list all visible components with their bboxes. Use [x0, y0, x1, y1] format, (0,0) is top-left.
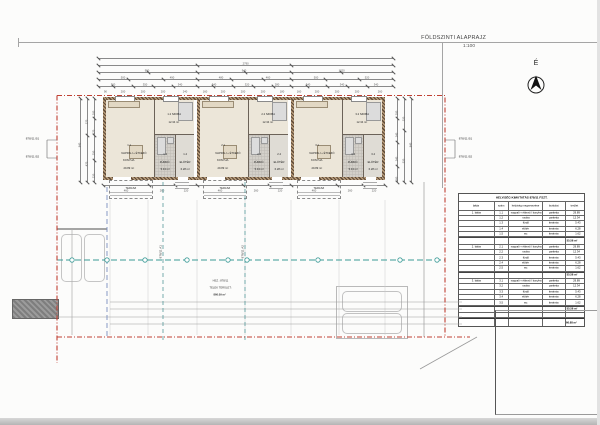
table-cell [494, 238, 509, 243]
dimension-text: 520 [403, 159, 406, 164]
table-cell: szoba [508, 216, 542, 220]
dimension-value: 840 [399, 131, 417, 159]
table-header-row: lakásszámhelyiség megnevezéseburkolatter… [459, 202, 584, 211]
table-cell-text: 2.3 [500, 256, 504, 259]
table-cell: 2.4 [494, 261, 509, 265]
table-cell: 5.43 [565, 221, 584, 225]
room-label-line: 2.2 SZOBA [261, 114, 275, 116]
table-cell-text: parketta [549, 217, 559, 220]
terrace-step [110, 192, 152, 193]
room-label-line: 1.1 [127, 145, 131, 147]
unit-cell: 2. lakás [459, 245, 494, 249]
washbasin [355, 137, 362, 144]
room-label-line: 29.89 m² [124, 168, 135, 170]
dimension-text: 250 [93, 150, 96, 155]
dimension-text: 160 [297, 90, 302, 93]
step-line [363, 182, 377, 183]
table-cell: kerámia [542, 261, 564, 265]
kitchen-counter [296, 101, 328, 108]
unit-module: 1.1NAPPALI + ÉTKEZŐKONYHA29.89 m²1.2 SZO… [103, 97, 197, 180]
table-cell: 6.28 [565, 227, 584, 231]
room-label-line: 2.1 [221, 145, 225, 147]
table-cell: 6.28 [565, 295, 584, 299]
table-cell-text: 1.4 [500, 228, 504, 231]
room-label-line: FÜRDŐ [348, 162, 358, 164]
table-cell: szoba [508, 250, 542, 254]
table-cell-text: 1.62 [576, 301, 581, 304]
hall-label: 3.4ELŐTÉR6.28 m² [360, 149, 386, 172]
table-cell-text: 1.62 [576, 267, 581, 270]
table-cell [459, 238, 494, 243]
table-cell-text: terület [571, 204, 579, 207]
terrace: TERASZ [297, 180, 341, 199]
room-label-line: 6.28 m² [368, 169, 377, 171]
car-outline [61, 234, 82, 282]
window [163, 96, 179, 102]
table-cell-text: 1. lakás [472, 211, 481, 214]
table-cell-text: 3.1 [500, 280, 504, 283]
dimension-text: 200 [335, 90, 340, 93]
terrace-step [110, 195, 152, 196]
unit-cell [459, 284, 494, 288]
unit-cell [459, 266, 494, 270]
room-label-line: KONYHA [217, 160, 228, 162]
table-cell: 3.5 [494, 300, 509, 304]
table-cell: wc [508, 266, 542, 270]
table-cell-text: burkolat [549, 204, 559, 207]
table-cell: 3.2 [494, 284, 509, 288]
terrace: TERASZ [203, 180, 247, 199]
unit-cell [459, 232, 494, 236]
bedroom-label: 1.2 SZOBA12.34 m² [156, 109, 192, 124]
dimension-text: 240 [183, 90, 188, 93]
step-line [269, 185, 283, 186]
table-cell-text: szoba [522, 217, 529, 220]
unit-cell [459, 227, 494, 231]
table-cell-text: 2.1 [500, 245, 504, 248]
step-line [363, 188, 377, 189]
table-cell: 2.1 [494, 245, 509, 249]
table-cell: 3.1 [494, 279, 509, 283]
living-room-label: 1.1NAPPALI + ÉTKEZŐKONYHA29.89 m² [106, 140, 152, 170]
dimension-text: 260 [348, 189, 353, 192]
table-cell-text: 2. lakás [472, 245, 481, 248]
terrace-label: TERASZ [204, 183, 246, 191]
table-cell-text: kerámia [549, 296, 559, 299]
dimension-text: 200 [261, 90, 266, 93]
table-cell-text: előtér [522, 262, 529, 265]
dimension-value: 320 [392, 105, 410, 133]
room-label-line: 3.2 SZOBA [355, 114, 369, 116]
table-cell-text: 1.1 [500, 211, 504, 214]
kitchen-counter [108, 101, 140, 108]
car-outline [342, 313, 402, 334]
floor-plan-drawing: FÖLDSZINTI ALAPRAJZ 1:100 É 878/11 B1 87… [0, 0, 600, 425]
unit-cell [459, 261, 494, 265]
sum-cell: 55.56 m² [565, 238, 584, 243]
table-cell-text: 6.28 [576, 262, 581, 265]
room-label-line: 2.3 [257, 154, 261, 156]
table-title-row: HELYISÉG KIMUTATÁS 878/11 FSZT. [459, 194, 584, 202]
dimension-text: 220 [184, 189, 189, 192]
entry-steps [175, 180, 189, 189]
dimension-text: 260 [378, 90, 383, 93]
unit-cell [459, 295, 494, 299]
room-label-line: ELŐTÉR [368, 162, 379, 164]
table-cell-text: wc [524, 267, 527, 270]
room-label-line: 5.43 m² [254, 169, 263, 171]
dimension-text: 90 [104, 90, 107, 93]
table-cell: parketta [542, 279, 564, 283]
room-label-line: 5.43 m² [160, 169, 169, 171]
room-label-line: FÜRDŐ [160, 162, 170, 164]
table-cell-text: 1.2 [500, 217, 504, 220]
table-cell: 1.62 [565, 266, 584, 270]
table-cell: 29.89 [565, 279, 584, 283]
room-label-line: 12.34 m² [263, 122, 274, 124]
table-cell-text: 29.89 [573, 211, 580, 214]
room-label-line: ELŐTÉR [274, 162, 285, 164]
table-header-cell: terület [565, 202, 584, 210]
table-cell: parketta [542, 216, 564, 220]
car-outline [84, 234, 105, 282]
table-cell-text: lakás [473, 204, 479, 207]
terrace-step [204, 192, 246, 193]
table-cell-text: 3.3 [500, 290, 504, 293]
sum-cell: 55.56 m² [565, 273, 584, 278]
table-cell: 29.89 [565, 245, 584, 249]
table-cell: fürdő [508, 221, 542, 225]
table-cell: 1.2 [494, 216, 509, 220]
table-cell [494, 273, 509, 278]
table-cell: 2.3 [494, 255, 509, 259]
table-cell-text: 3. lakás [472, 280, 481, 283]
table-cell-text: fürdő [523, 290, 529, 293]
table-cell-text: 5.43 [576, 256, 581, 259]
room-label-line: 29.89 m² [218, 168, 229, 170]
table-cell-text: 3.5 [500, 301, 504, 304]
table-cell-text: előtér [522, 296, 529, 299]
dimension-text: 220 [372, 189, 377, 192]
table-cell-text: 12.34 [573, 251, 580, 254]
table-cell-text: parketta [549, 211, 559, 214]
dimension-tick [96, 56, 100, 60]
room-label-line: NAPPALI + ÉTKEZŐ [309, 153, 334, 155]
table-cell-text: 2.4 [500, 262, 504, 265]
step-line [269, 182, 283, 183]
title-block-box [495, 310, 600, 415]
table-cell: 5.43 [565, 290, 584, 294]
car-outline [342, 291, 402, 312]
table-cell: kerámia [542, 290, 564, 294]
table-cell-text: kerámia [549, 267, 559, 270]
room-schedule-table: HELYISÉG KIMUTATÁS 878/11 FSZT.lakásszám… [458, 193, 585, 327]
table-cell: kerámia [542, 300, 564, 304]
table-cell-text: helyiség megnevezése [512, 204, 539, 207]
table-header-cell: lakás [459, 202, 494, 210]
entry-steps [363, 180, 377, 189]
table-cell: 5.43 [565, 255, 584, 259]
dimension-tick [409, 180, 413, 184]
table-cell-text: kerámia [549, 228, 559, 231]
step-line [175, 182, 189, 183]
dimension-text: 180 [280, 90, 285, 93]
room-label-line: 12.34 m² [169, 122, 180, 124]
table-cell-text: 55.56 m² [567, 274, 578, 277]
unit-cell: 3. lakás [459, 279, 494, 283]
table-cell-text: fürdő [523, 222, 529, 225]
hall-label: 1.4ELŐTÉR6.28 m² [172, 149, 198, 172]
table-cell: 1.1 [494, 211, 509, 215]
room-label-line: 2.4 [277, 154, 281, 156]
room-label-line: 1.2 SZOBA [167, 114, 181, 116]
table-cell: parketta [542, 250, 564, 254]
table-cell-text: 3.4 [500, 296, 504, 299]
terrace-step [298, 192, 340, 193]
dimension-text: 220 [278, 189, 283, 192]
dimension-text: 260 [254, 189, 259, 192]
room-label-line: 3.4 [371, 154, 375, 156]
table-cell [508, 238, 542, 243]
table-cell: kerámia [542, 232, 564, 236]
terrace-label: TERASZ [110, 183, 152, 191]
table-cell [508, 273, 542, 278]
room-label-line: TERASZ [314, 188, 325, 190]
room-label-line: 12.34 m² [357, 122, 368, 124]
table-cell-text: 1.62 [576, 233, 581, 236]
table-cell-text: 2.2 [500, 251, 504, 254]
table-cell [459, 313, 494, 318]
unit-cell [459, 300, 494, 304]
table-cell-text: kerámia [549, 256, 559, 259]
table-cell-text: 3.2 [500, 285, 504, 288]
room-label-line: 1.3 [163, 154, 167, 156]
table-cell: 6.28 [565, 261, 584, 265]
table-cell-text: nappali + étkező / konyha [510, 211, 541, 214]
neighbour-building [12, 299, 59, 319]
room-label-line: ELŐTÉR [180, 162, 191, 164]
dimension-value: 260 [366, 80, 394, 98]
unit-cell [459, 250, 494, 254]
room-label-line: 1.4 [183, 154, 187, 156]
table-cell-text: szám [498, 204, 504, 207]
table-cell: 29.89 [565, 211, 584, 215]
table-cell-text: fürdő [523, 256, 529, 259]
table-cell [459, 273, 494, 278]
entry-steps [269, 180, 283, 189]
room-label-line: 5.43 m² [348, 169, 357, 171]
table-cell: wc [508, 300, 542, 304]
table-cell-text: wc [524, 301, 527, 304]
table-cell: kerámia [542, 227, 564, 231]
table-cell-text: 6.28 [576, 228, 581, 231]
living-room-label: 2.1NAPPALI + ÉTKEZŐKONYHA29.89 m² [200, 140, 246, 170]
table-cell-text: kerámia [549, 262, 559, 265]
table-cell: előtér [508, 261, 542, 265]
room-label-line: TERASZ [126, 188, 137, 190]
table-cell: kerámia [542, 255, 564, 259]
table-cell: kerámia [542, 221, 564, 225]
dimension-tick [96, 63, 100, 67]
table-cell-text: kerámia [549, 301, 559, 304]
unit-cell: 1. lakás [459, 211, 494, 215]
dimension-text: 160 [396, 177, 399, 182]
table-cell-text: 6.28 [576, 296, 581, 299]
table-cell-text: 5.43 [576, 290, 581, 293]
dimension-text: 200 [93, 111, 96, 116]
table-cell: fürdő [508, 255, 542, 259]
terrace-step [298, 195, 340, 196]
table-cell: 1.5 [494, 232, 509, 236]
dimension-value: 220 [82, 162, 100, 190]
table-cell-text: 55.56 m² [567, 240, 578, 243]
dimension-text: 200 [161, 90, 166, 93]
dimension-text: 160 [203, 90, 208, 93]
table-cell-text: 1.3 [500, 222, 504, 225]
table-cell: nappali + étkező / konyha [508, 279, 542, 283]
table-header-cell: burkolat [542, 202, 564, 210]
step-line [175, 188, 189, 189]
dimension-text: 200 [141, 90, 146, 93]
table-cell [459, 319, 494, 325]
dimension-text: 200 [221, 90, 226, 93]
table-cell-text: kerámia [549, 290, 559, 293]
table-cell-text: 29.89 [573, 245, 580, 248]
table-header-cell: helyiség megnevezése [508, 202, 542, 210]
table-cell: 1.62 [565, 300, 584, 304]
dimension-text: 320 [403, 117, 406, 122]
table-title-text: HELYISÉG KIMUTATÁS 878/11 FSZT. [496, 196, 548, 199]
dimension-text: 200 [121, 90, 126, 93]
table-cell-text: kerámia [549, 222, 559, 225]
unit-cell [459, 290, 494, 294]
table-cell: kerámia [542, 295, 564, 299]
room-label-line: FÜRDŐ [254, 162, 264, 164]
table-cell: parketta [542, 284, 564, 288]
bedroom-label: 3.2 SZOBA12.34 m² [344, 109, 380, 124]
table-cell-text: előtér [522, 228, 529, 231]
washbasin [261, 137, 268, 144]
table-title-cell: HELYISÉG KIMUTATÁS 878/11 FSZT. [459, 194, 584, 201]
table-cell: előtér [508, 295, 542, 299]
table-cell-text: 12.34 [573, 217, 580, 220]
dimension-tick [101, 183, 105, 187]
dimension-text: 240 [396, 133, 399, 138]
table-cell-text: parketta [549, 245, 559, 248]
step-line [175, 185, 189, 186]
table-cell: 2.2 [494, 250, 509, 254]
dimension-text: 840 [410, 143, 413, 148]
page-bottom-shadow [0, 418, 600, 425]
table-cell: előtér [508, 227, 542, 231]
table-cell: nappali + étkező / konyha [508, 211, 542, 215]
dimension-text: 260 [160, 189, 165, 192]
table-cell [542, 273, 564, 278]
table-cell-text: wc [524, 233, 527, 236]
dimension-text: 170 [93, 129, 96, 134]
table-cell-text: nappali + étkező / konyha [510, 245, 541, 248]
dimension-text: 200 [315, 90, 320, 93]
window [257, 96, 273, 102]
table-sum-row: 55.56 m² [459, 272, 584, 279]
table-cell-text: 5.43 [576, 222, 581, 225]
dimension-text: 840 [79, 143, 82, 148]
table-cell: 12.34 [565, 250, 584, 254]
table-cell: fürdő [508, 290, 542, 294]
room-label-line: 3.1 [315, 145, 319, 147]
window [351, 96, 367, 102]
table-cell-text: 2.5 [500, 267, 504, 270]
table-cell: nappali + étkező / konyha [508, 245, 542, 249]
unit-cell [459, 216, 494, 220]
room-label-line: 6.28 m² [274, 169, 283, 171]
table-cell: kerámia [542, 266, 564, 270]
unit-module: 3.1NAPPALI + ÉTKEZŐKONYHA29.89 m²3.2 SZO… [291, 97, 385, 180]
unit-cell [459, 255, 494, 259]
table-cell: 12.34 [565, 284, 584, 288]
dimension-text: 220 [93, 174, 96, 179]
dimension-text: 200 [355, 90, 360, 93]
table-cell: parketta [542, 245, 564, 249]
table-cell-text: nappali + étkező / konyha [510, 280, 541, 283]
table-cell-text: szoba [522, 285, 529, 288]
terrace-label: TERASZ [298, 183, 340, 191]
unit-cell [459, 221, 494, 225]
table-cell-text: 1.5 [500, 233, 504, 236]
room-label-line: 6.28 m² [180, 169, 189, 171]
table-cell-text: parketta [549, 280, 559, 283]
table-cell: parketta [542, 211, 564, 215]
washbasin [167, 137, 174, 144]
kitchen-counter [202, 101, 234, 108]
table-cell-text: parketta [549, 251, 559, 254]
dimension-text: 200 [241, 90, 246, 93]
terrace: TERASZ [109, 180, 153, 199]
table-header-cell: szám [494, 202, 509, 210]
table-cell-text: 29.89 [573, 280, 580, 283]
table-sum-row: 55.56 m² [459, 237, 584, 244]
table-cell: wc [508, 232, 542, 236]
table-cell: 1.3 [494, 221, 509, 225]
bedroom-label: 2.2 SZOBA12.34 m² [250, 109, 286, 124]
living-room-label: 3.1NAPPALI + ÉTKEZŐKONYHA29.89 m² [294, 140, 340, 170]
table-cell: 1.62 [565, 232, 584, 236]
table-cell: 2.5 [494, 266, 509, 270]
room-label-line: TERASZ [220, 188, 231, 190]
room-label-line: 3.3 [351, 154, 355, 156]
unit-module: 2.1NAPPALI + ÉTKEZŐKONYHA29.89 m²2.2 SZO… [197, 97, 291, 180]
hall-label: 2.4ELŐTÉR6.28 m² [266, 149, 292, 172]
room-label-line: 29.89 m² [312, 168, 323, 170]
table-cell: 12.34 [565, 216, 584, 220]
step-line [269, 188, 283, 189]
room-label-line: KONYHA [311, 160, 322, 162]
room-label-line: KONYHA [123, 160, 134, 162]
table-cell-text: szoba [522, 251, 529, 254]
room-label-line: NAPPALI + ÉTKEZŐ [121, 153, 146, 155]
table-cell-text: parketta [549, 285, 559, 288]
table-cell [542, 238, 564, 243]
table-cell: 3.4 [494, 295, 509, 299]
table-cell: 3.3 [494, 290, 509, 294]
table-cell: 1.4 [494, 227, 509, 231]
room-label-line: NAPPALI + ÉTKEZŐ [215, 153, 240, 155]
step-line [363, 185, 377, 186]
table-cell-text: 12.34 [573, 285, 580, 288]
table-cell: szoba [508, 284, 542, 288]
table-cell [459, 307, 494, 312]
table-cell-text: kerámia [549, 233, 559, 236]
